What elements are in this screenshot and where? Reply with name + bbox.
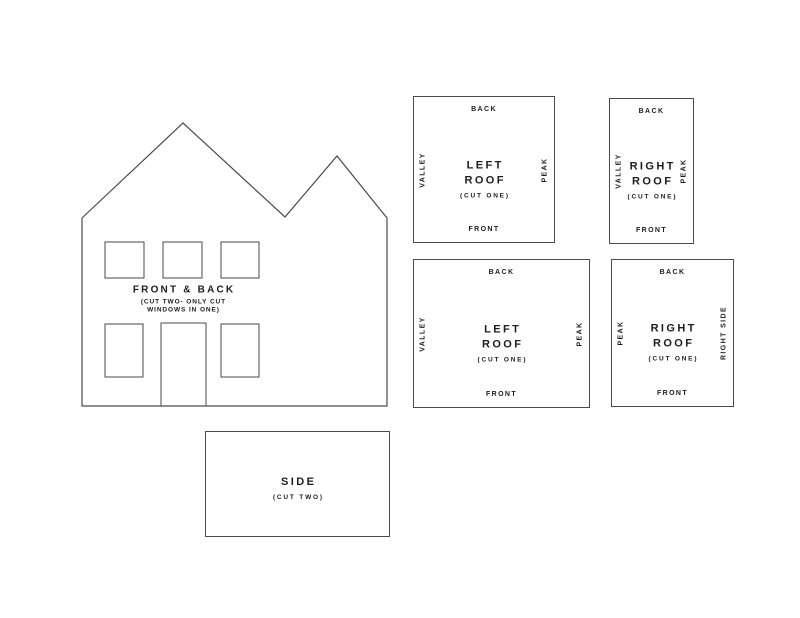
valley-edge-label: VALLEY (420, 316, 427, 352)
panel-right-roof-top: BACK FRONT VALLEY PEAK RIGHT ROOF (CUT O… (609, 98, 694, 244)
panel-right-roof-middle: BACK FRONT PEAK RIGHT SIDE RIGHT ROOF (C… (611, 259, 734, 407)
cut-note: (CUT ONE) (478, 356, 528, 363)
front-edge-label: FRONT (636, 227, 667, 234)
panel-center-label: LEFT ROOF (CUT ONE) (478, 322, 526, 363)
panel-center-label: LEFT ROOF (CUT ONE) (460, 158, 508, 199)
house-cut-note-line2: WINDOWS IN ONE) (133, 306, 234, 314)
house-cut-note-line1: (CUT TWO- ONLY CUT (133, 299, 234, 307)
window (221, 324, 259, 377)
peak-edge-label: PEAK (681, 158, 688, 183)
window (105, 242, 144, 278)
front-edge-label: FRONT (486, 391, 517, 398)
cut-note: (CUT ONE) (460, 192, 510, 199)
valley-edge-label: VALLEY (616, 153, 623, 189)
back-edge-label: BACK (660, 269, 686, 276)
house-label-block: FRONT & BACK (CUT TWO- ONLY CUT WINDOWS … (133, 285, 233, 314)
house-piece-label: FRONT & BACK (133, 285, 236, 296)
back-edge-label: BACK (471, 106, 497, 113)
back-edge-label: BACK (639, 108, 665, 115)
panel-center-label: RIGHT ROOF (CUT ONE) (628, 160, 676, 201)
door (161, 323, 206, 406)
window (163, 242, 202, 278)
house-outline (82, 123, 387, 406)
front-edge-label: FRONT (657, 390, 688, 397)
panel-title-line1: RIGHT (628, 160, 678, 175)
cut-note: (CUT TWO) (273, 494, 324, 501)
window (221, 242, 259, 278)
panel-left-roof-middle: BACK FRONT VALLEY PEAK LEFT ROOF (CUT ON… (413, 259, 590, 408)
right-side-edge-label: RIGHT SIDE (721, 306, 728, 360)
panel-title-line2: ROOF (649, 337, 699, 352)
panel-title-line1: RIGHT (649, 322, 699, 337)
panel-title: SIDE (273, 475, 324, 490)
back-edge-label: BACK (489, 269, 515, 276)
panel-center-label: SIDE (CUT TWO) (273, 475, 322, 501)
panel-title-line2: ROOF (628, 175, 678, 190)
panel-side: SIDE (CUT TWO) (205, 431, 390, 537)
template-page: FRONT & BACK (CUT TWO- ONLY CUT WINDOWS … (0, 0, 800, 618)
panel-center-label: RIGHT ROOF (CUT ONE) (649, 322, 697, 363)
panel-title-line2: ROOF (460, 173, 510, 188)
panel-left-roof-top: BACK FRONT VALLEY PEAK LEFT ROOF (CUT ON… (413, 96, 555, 243)
valley-edge-label: VALLEY (420, 152, 427, 188)
cut-note: (CUT ONE) (628, 194, 678, 201)
panel-title-line2: ROOF (478, 337, 528, 352)
peak-edge-label: PEAK (542, 157, 549, 182)
window (105, 324, 143, 377)
panel-title-line1: LEFT (460, 158, 510, 173)
panel-title-line1: LEFT (478, 322, 528, 337)
peak-edge-label: PEAK (577, 321, 584, 346)
front-edge-label: FRONT (468, 226, 499, 233)
peak-edge-label: PEAK (618, 320, 625, 345)
cut-note: (CUT ONE) (649, 356, 699, 363)
